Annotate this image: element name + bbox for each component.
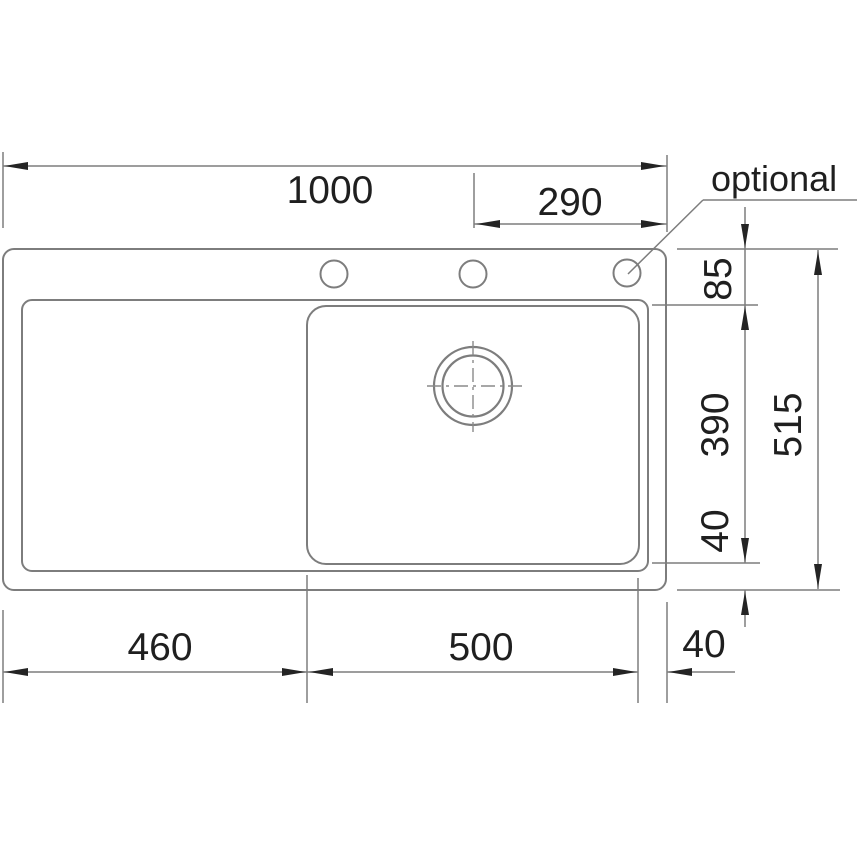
dim-label-total-depth: 515 <box>767 392 810 457</box>
dim-label-bowl-width: 500 <box>448 626 513 669</box>
arrow-390-bottom <box>741 538 749 562</box>
dim-label-bowl-to-right-edge: 40 <box>682 623 725 666</box>
dim-label-total-width: 1000 <box>287 169 374 212</box>
arrow-290-left <box>476 220 500 228</box>
arrow-390-top <box>741 306 749 330</box>
dim-label-bowl-length: 390 <box>694 392 737 457</box>
tap-hole-right-optional <box>614 260 641 287</box>
optional-label: optional <box>711 158 837 199</box>
dim-label-bowl-to-bottom-edge: 40 <box>694 509 737 552</box>
technical-drawing-canvas: 1000 290 optional 85 390 40 515 460 500 … <box>0 0 860 860</box>
arrow-460-right <box>282 668 306 676</box>
dim-label-tap-hole-offset: 290 <box>537 181 602 224</box>
dim-label-top-to-bowl: 85 <box>697 257 740 300</box>
arrow-500-right <box>613 668 637 676</box>
dim-label-drainer-width: 460 <box>127 626 192 669</box>
tap-hole-left <box>321 261 348 288</box>
arrow-85-top <box>741 224 749 248</box>
arrow-460-left <box>4 668 28 676</box>
arrow-515-top <box>814 251 822 275</box>
arrow-40-right-bottom <box>741 591 749 615</box>
arrow-500-left <box>309 668 333 676</box>
arrow-515-bottom <box>814 564 822 588</box>
arrow-1000-left <box>4 162 28 170</box>
arrow-1000-right <box>641 162 665 170</box>
sink-rim-inner-outline <box>22 300 648 571</box>
tap-hole-middle <box>460 261 487 288</box>
sink-dimension-drawing: 1000 290 optional 85 390 40 515 460 500 … <box>0 0 860 860</box>
arrow-40-bottom-right <box>668 668 692 676</box>
arrow-290-right <box>641 220 665 228</box>
